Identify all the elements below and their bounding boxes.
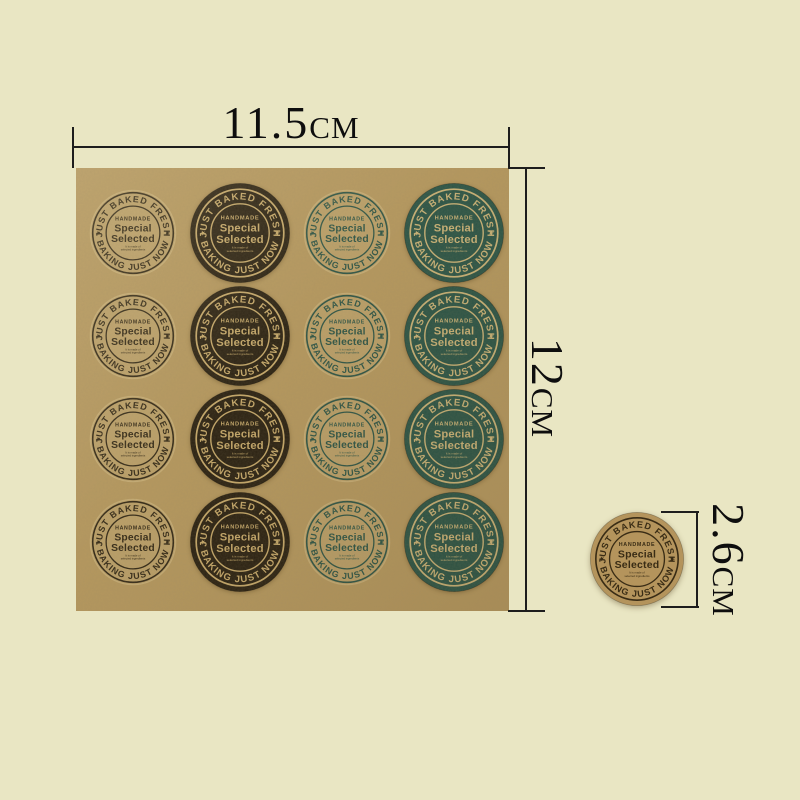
svg-text:Selected: Selected	[325, 543, 369, 554]
left-star-icon: ★	[198, 539, 207, 545]
svg-text:selected ingredients: selected ingredients	[335, 454, 360, 458]
svg-text:selected ingredients: selected ingredients	[227, 558, 254, 562]
right-star-icon: ★	[163, 539, 171, 545]
svg-text:Special: Special	[220, 429, 261, 441]
diameter-unit: CM	[706, 567, 741, 617]
right-star-icon: ★	[487, 539, 496, 545]
sticker-row3-col3-kraft-green-print: JUST BAKED FRESHBAKING JUST NOW★★HANDMAD…	[301, 393, 393, 485]
diameter-dimension-label: 2.6CM	[705, 503, 751, 617]
svg-text:selected ingredients: selected ingredients	[121, 557, 146, 561]
left-star-icon: ★	[198, 436, 207, 442]
sticker-row3-col4-dark-green-graphic: JUST BAKED FRESHBAKING JUST NOW★★HANDMAD…	[404, 389, 504, 489]
sticker-row1-col2-dark-brown-graphic: JUST BAKED FRESHBAKING JUST NOW★★HANDMAD…	[190, 183, 290, 283]
sticker-row2-col1-kraft-brown-print: JUST BAKED FRESHBAKING JUST NOW★★HANDMAD…	[87, 290, 179, 382]
svg-text:Special: Special	[434, 532, 475, 544]
left-star-icon: ★	[309, 539, 317, 545]
diameter-top-tick	[661, 511, 699, 513]
sticker-row2-col2-dark-brown-graphic: JUST BAKED FRESHBAKING JUST NOW★★HANDMAD…	[190, 286, 290, 386]
svg-text:HANDMADE: HANDMADE	[435, 318, 474, 324]
svg-text:Special: Special	[434, 326, 475, 338]
svg-text:Special: Special	[220, 532, 261, 544]
product-dimension-image: 11.5CM JUST BAKED FRESHBAKING JUST NOW★★…	[0, 0, 800, 800]
svg-text:Special: Special	[220, 223, 261, 235]
sticker-sheet: JUST BAKED FRESHBAKING JUST NOW★★HANDMAD…	[76, 168, 509, 611]
svg-text:selected ingredients: selected ingredients	[227, 249, 254, 253]
left-star-icon: ★	[309, 333, 317, 339]
width-right-tick	[508, 127, 510, 168]
right-star-icon: ★	[377, 436, 385, 442]
left-star-icon: ★	[412, 436, 421, 442]
svg-text:HANDMADE: HANDMADE	[329, 422, 365, 428]
diameter-bottom-tick	[661, 606, 699, 608]
svg-text:Selected: Selected	[111, 543, 155, 554]
svg-text:HANDMADE: HANDMADE	[435, 524, 474, 530]
svg-text:Special: Special	[434, 223, 475, 235]
svg-text:Special: Special	[434, 429, 475, 441]
left-star-icon: ★	[412, 230, 421, 236]
height-value: 12	[522, 338, 573, 388]
width-left-tick	[72, 127, 74, 168]
svg-text:Special: Special	[114, 533, 151, 544]
right-star-icon: ★	[487, 436, 496, 442]
sticker-row4-col3-kraft-green-print-graphic: JUST BAKED FRESHBAKING JUST NOW★★HANDMAD…	[301, 496, 393, 588]
svg-text:selected ingredients: selected ingredients	[227, 455, 254, 459]
sticker-row4-col3-kraft-green-print: JUST BAKED FRESHBAKING JUST NOW★★HANDMAD…	[301, 496, 393, 588]
left-star-icon: ★	[95, 539, 103, 545]
svg-text:selected ingredients: selected ingredients	[335, 351, 360, 355]
svg-text:selected ingredients: selected ingredients	[335, 248, 360, 252]
width-unit: CM	[309, 110, 359, 145]
sticker-row3-col2-dark-brown: JUST BAKED FRESHBAKING JUST NOW★★HANDMAD…	[190, 389, 290, 489]
right-star-icon: ★	[487, 333, 496, 339]
diameter-dimension-line	[696, 512, 698, 608]
svg-text:HANDMADE: HANDMADE	[221, 524, 260, 530]
svg-text:Special: Special	[114, 327, 151, 338]
sticker-row2-col1-kraft-brown-print-graphic: JUST BAKED FRESHBAKING JUST NOW★★HANDMAD…	[87, 290, 179, 382]
right-star-icon: ★	[377, 539, 385, 545]
sticker-row1-col3-kraft-green-print-graphic: JUST BAKED FRESHBAKING JUST NOW★★HANDMAD…	[301, 187, 393, 279]
left-star-icon: ★	[95, 333, 103, 339]
sticker-row4-col4-dark-green-graphic: JUST BAKED FRESHBAKING JUST NOW★★HANDMAD…	[404, 492, 504, 592]
svg-text:selected ingredients: selected ingredients	[121, 454, 146, 458]
svg-text:HANDMADE: HANDMADE	[115, 422, 151, 428]
right-star-icon: ★	[377, 333, 385, 339]
right-star-icon: ★	[273, 436, 282, 442]
svg-text:HANDMADE: HANDMADE	[221, 421, 260, 427]
left-star-icon: ★	[95, 230, 103, 236]
svg-text:HANDMADE: HANDMADE	[435, 421, 474, 427]
svg-text:HANDMADE: HANDMADE	[115, 525, 151, 531]
sticker-row1-col4-dark-green: JUST BAKED FRESHBAKING JUST NOW★★HANDMAD…	[404, 183, 504, 283]
right-star-icon: ★	[163, 230, 171, 236]
left-star-icon: ★	[598, 556, 606, 562]
svg-text:Selected: Selected	[216, 337, 264, 349]
svg-text:Selected: Selected	[325, 234, 369, 245]
svg-text:HANDMADE: HANDMADE	[221, 215, 260, 221]
sticker-row1-col3-kraft-green-print: JUST BAKED FRESHBAKING JUST NOW★★HANDMAD…	[301, 187, 393, 279]
height-bottom-tick	[508, 610, 545, 612]
left-star-icon: ★	[412, 539, 421, 545]
right-star-icon: ★	[163, 436, 171, 442]
svg-text:Selected: Selected	[216, 543, 264, 555]
svg-text:Special: Special	[114, 224, 151, 235]
sticker-row2-col4-dark-green: JUST BAKED FRESHBAKING JUST NOW★★HANDMAD…	[404, 286, 504, 386]
svg-text:Selected: Selected	[430, 543, 478, 555]
sticker-row3-col1-kraft-brown-print-graphic: JUST BAKED FRESHBAKING JUST NOW★★HANDMAD…	[87, 393, 179, 485]
sticker-row1-col1-kraft-brown-print: JUST BAKED FRESHBAKING JUST NOW★★HANDMAD…	[87, 187, 179, 279]
svg-text:Special: Special	[114, 430, 151, 441]
left-star-icon: ★	[198, 230, 207, 236]
svg-text:selected ingredients: selected ingredients	[121, 248, 146, 252]
right-star-icon: ★	[273, 333, 282, 339]
svg-text:Selected: Selected	[430, 234, 478, 246]
svg-text:selected ingredients: selected ingredients	[121, 351, 146, 355]
svg-text:Special: Special	[328, 224, 365, 235]
sticker-row4-col1-kraft-brown-print-graphic: JUST BAKED FRESHBAKING JUST NOW★★HANDMAD…	[87, 496, 179, 588]
left-star-icon: ★	[412, 333, 421, 339]
width-dimension-line	[73, 146, 509, 148]
sticker-row2-col3-kraft-green-print: JUST BAKED FRESHBAKING JUST NOW★★HANDMAD…	[301, 290, 393, 382]
svg-text:Selected: Selected	[430, 440, 478, 452]
svg-text:Special: Special	[220, 326, 261, 338]
svg-text:HANDMADE: HANDMADE	[115, 216, 151, 222]
single-sticker-sample: JUST BAKED FRESHBAKING JUST NOW★★HANDMAD…	[590, 512, 684, 611]
height-unit: CM	[525, 388, 560, 438]
svg-text:selected ingredients: selected ingredients	[441, 558, 468, 562]
svg-text:Selected: Selected	[216, 440, 264, 452]
svg-text:HANDMADE: HANDMADE	[435, 215, 474, 221]
left-star-icon: ★	[309, 230, 317, 236]
svg-text:HANDMADE: HANDMADE	[329, 216, 365, 222]
svg-text:selected ingredients: selected ingredients	[441, 455, 468, 459]
sticker-grid: JUST BAKED FRESHBAKING JUST NOW★★HANDMAD…	[76, 168, 509, 611]
sticker-row1-col2-dark-brown: JUST BAKED FRESHBAKING JUST NOW★★HANDMAD…	[190, 183, 290, 283]
left-star-icon: ★	[309, 436, 317, 442]
svg-text:Selected: Selected	[111, 440, 155, 451]
right-star-icon: ★	[163, 333, 171, 339]
sticker-row3-col1-kraft-brown-print: JUST BAKED FRESHBAKING JUST NOW★★HANDMAD…	[87, 393, 179, 485]
right-star-icon: ★	[273, 539, 282, 545]
svg-text:selected ingredients: selected ingredients	[441, 352, 468, 356]
svg-text:Selected: Selected	[325, 337, 369, 348]
left-star-icon: ★	[198, 333, 207, 339]
sticker-row1-col1-kraft-brown-print-graphic: JUST BAKED FRESHBAKING JUST NOW★★HANDMAD…	[87, 187, 179, 279]
svg-text:HANDMADE: HANDMADE	[329, 525, 365, 531]
single-sticker-graphic: JUST BAKED FRESHBAKING JUST NOW★★HANDMAD…	[590, 512, 684, 606]
svg-text:selected ingredients: selected ingredients	[441, 249, 468, 253]
svg-text:Selected: Selected	[430, 337, 478, 349]
sticker-row2-col4-dark-green-graphic: JUST BAKED FRESHBAKING JUST NOW★★HANDMAD…	[404, 286, 504, 386]
svg-text:Selected: Selected	[325, 440, 369, 451]
sticker-row4-col2-dark-brown-graphic: JUST BAKED FRESHBAKING JUST NOW★★HANDMAD…	[190, 492, 290, 592]
sticker-row3-col2-dark-brown-graphic: JUST BAKED FRESHBAKING JUST NOW★★HANDMAD…	[190, 389, 290, 489]
right-star-icon: ★	[668, 556, 676, 562]
svg-text:Selected: Selected	[615, 559, 660, 571]
width-value: 11.5	[222, 97, 309, 148]
height-top-tick	[508, 167, 545, 169]
right-star-icon: ★	[487, 230, 496, 236]
diameter-value: 2.6	[703, 503, 754, 567]
svg-text:selected ingredients: selected ingredients	[624, 574, 650, 578]
svg-text:selected ingredients: selected ingredients	[335, 557, 360, 561]
svg-text:HANDMADE: HANDMADE	[329, 319, 365, 325]
svg-text:Special: Special	[328, 327, 365, 338]
svg-text:HANDMADE: HANDMADE	[619, 542, 655, 548]
sticker-row2-col2-dark-brown: JUST BAKED FRESHBAKING JUST NOW★★HANDMAD…	[190, 286, 290, 386]
svg-text:Selected: Selected	[111, 234, 155, 245]
left-star-icon: ★	[95, 436, 103, 442]
svg-text:selected ingredients: selected ingredients	[227, 352, 254, 356]
svg-text:Selected: Selected	[111, 337, 155, 348]
svg-text:HANDMADE: HANDMADE	[221, 318, 260, 324]
sticker-row2-col3-kraft-green-print-graphic: JUST BAKED FRESHBAKING JUST NOW★★HANDMAD…	[301, 290, 393, 382]
svg-text:Special: Special	[328, 430, 365, 441]
sticker-row4-col1-kraft-brown-print: JUST BAKED FRESHBAKING JUST NOW★★HANDMAD…	[87, 496, 179, 588]
right-star-icon: ★	[377, 230, 385, 236]
sticker-row3-col3-kraft-green-print-graphic: JUST BAKED FRESHBAKING JUST NOW★★HANDMAD…	[301, 393, 393, 485]
sticker-row1-col4-dark-green-graphic: JUST BAKED FRESHBAKING JUST NOW★★HANDMAD…	[404, 183, 504, 283]
height-dimension-label: 12CM	[524, 338, 570, 438]
svg-text:Selected: Selected	[216, 234, 264, 246]
svg-text:Special: Special	[328, 533, 365, 544]
sticker-row4-col4-dark-green: JUST BAKED FRESHBAKING JUST NOW★★HANDMAD…	[404, 492, 504, 592]
sticker-row3-col4-dark-green: JUST BAKED FRESHBAKING JUST NOW★★HANDMAD…	[404, 389, 504, 489]
sticker-row4-col2-dark-brown: JUST BAKED FRESHBAKING JUST NOW★★HANDMAD…	[190, 492, 290, 592]
svg-text:HANDMADE: HANDMADE	[115, 319, 151, 325]
right-star-icon: ★	[273, 230, 282, 236]
width-dimension-label: 11.5CM	[73, 100, 509, 146]
